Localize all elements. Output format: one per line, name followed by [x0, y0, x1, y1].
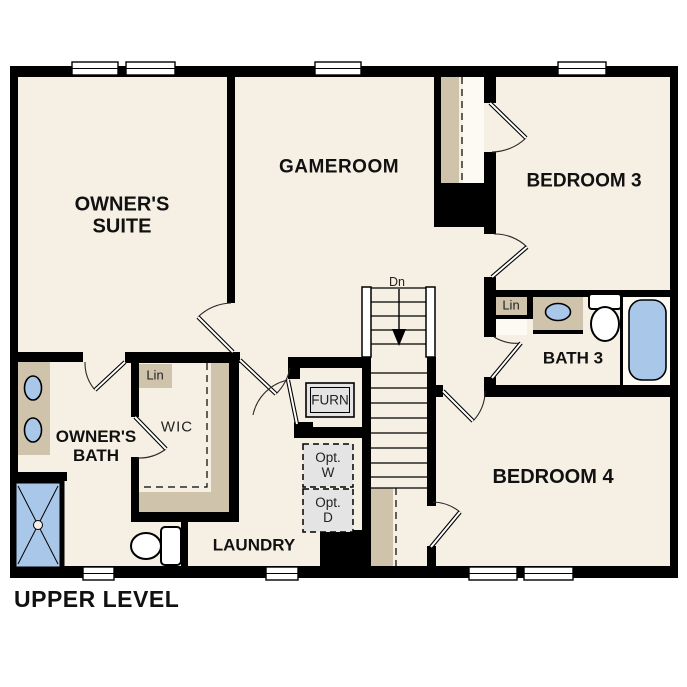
chase-strip	[463, 77, 484, 183]
wall-segment	[485, 385, 670, 397]
wall-segment	[533, 330, 583, 334]
wall-segment	[670, 66, 678, 578]
label-line: W	[315, 465, 341, 480]
label-line: OWNER'S	[75, 194, 170, 216]
stairs-down-label: Dn	[389, 275, 405, 289]
closet-label-lin-bath3: Lin	[502, 299, 519, 314]
bathtub-icon	[629, 300, 666, 380]
wall-segment	[362, 357, 371, 566]
window	[83, 567, 114, 580]
linen-closet-floor	[496, 318, 527, 335]
optional-dryer-label: Opt. D	[315, 495, 341, 525]
shower-icon	[14, 481, 62, 569]
wall-segment	[17, 352, 83, 362]
stair-rail	[426, 287, 435, 357]
equipment-label-furnace: FURN	[311, 392, 349, 407]
sink-icon	[25, 376, 42, 400]
wall-segment	[434, 183, 496, 227]
wall-segment	[484, 277, 496, 337]
wic-shelf-bottom	[139, 492, 229, 512]
wall-segment	[181, 516, 188, 572]
wall-segment	[131, 362, 139, 417]
plan-title: UPPER LEVEL	[14, 586, 179, 613]
window	[524, 567, 573, 580]
label-line: BATH	[56, 446, 137, 465]
wall-segment	[427, 357, 436, 506]
wall-segment	[484, 77, 496, 103]
label-line: OWNER'S	[56, 427, 137, 446]
sink-icon	[546, 304, 571, 321]
closet-label-lin-wic: Lin	[146, 369, 163, 384]
label-line: Opt.	[315, 450, 341, 465]
chase-top	[441, 77, 459, 183]
wall-segment	[484, 377, 496, 397]
label-line: Opt.	[315, 495, 341, 510]
wall-segment	[484, 152, 496, 183]
wall-segment	[434, 77, 441, 183]
label-line: SUITE	[75, 216, 170, 238]
window	[126, 62, 175, 75]
optional-washer-label: Opt. W	[315, 450, 341, 480]
wall-segment	[294, 422, 313, 438]
wall-segment	[484, 227, 496, 234]
wall-segment	[484, 290, 670, 297]
room-label-laundry: LAUNDRY	[213, 535, 295, 554]
room-label-wic: WIC	[161, 420, 193, 437]
wall-segment	[527, 296, 533, 319]
floor-plan: OWNER'S SUITE GAMEROOM BEDROOM 3 BEDROOM…	[0, 0, 687, 687]
toilet-icon	[589, 294, 621, 341]
room-label-owners-bath: OWNER'S BATH	[56, 427, 137, 465]
sink-icon	[25, 418, 42, 442]
window	[72, 62, 118, 75]
room-label-bedroom4: BEDROOM 4	[492, 466, 613, 488]
wall-segment	[131, 457, 139, 518]
wall-segment	[229, 362, 239, 512]
wall-segment	[227, 77, 235, 303]
room-label-bedroom3: BEDROOM 3	[526, 170, 641, 191]
wall-segment	[427, 385, 443, 397]
wall-segment	[427, 546, 436, 566]
wall-segment	[320, 530, 362, 566]
wall-segment	[288, 357, 371, 368]
wall-segment	[496, 315, 527, 319]
window	[558, 62, 606, 75]
room-label-gameroom: GAMEROOM	[279, 156, 399, 177]
label-line: D	[315, 510, 341, 525]
floor-plan-drawing	[0, 0, 687, 687]
wic-shelf-side	[211, 363, 229, 512]
window	[266, 567, 298, 580]
stairwell-chase	[371, 488, 393, 566]
stair-rail	[362, 287, 371, 357]
wall-segment	[125, 352, 240, 363]
room-label-owners-suite: OWNER'S SUITE	[75, 194, 170, 239]
room-label-bath3: BATH 3	[543, 348, 603, 367]
window	[315, 62, 361, 75]
window	[469, 567, 517, 580]
wall-segment	[620, 297, 623, 388]
